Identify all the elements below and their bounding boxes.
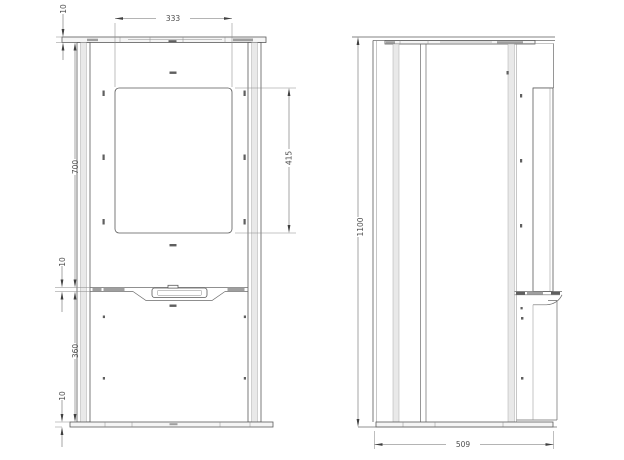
side-rail-front bbox=[508, 44, 515, 422]
front-view bbox=[62, 37, 273, 427]
dim-opening-width-label: 333 bbox=[166, 14, 181, 23]
dim-overall-height-label: 1100 bbox=[356, 217, 365, 236]
side-top-block-step bbox=[533, 44, 554, 89]
side-rail-back bbox=[393, 44, 399, 422]
handle-latch-button bbox=[168, 285, 178, 288]
front-base-center-mark bbox=[170, 423, 178, 425]
side-handle-bracket bbox=[515, 292, 563, 305]
front-top-plate-fitting-right bbox=[233, 39, 253, 42]
dim-overall-depth-label: 509 bbox=[456, 440, 471, 449]
dim-lower-height-label: 360 bbox=[71, 344, 80, 359]
handle-grip bbox=[152, 288, 207, 298]
cabinet-dimension-drawing: 10 700 10 360 10 333 415 bbox=[0, 0, 624, 460]
side-dimensions: 1100 509 bbox=[356, 37, 554, 449]
front-top-plate-fitting-left bbox=[87, 39, 98, 41]
side-inner-wall bbox=[421, 44, 427, 422]
side-view bbox=[352, 37, 562, 427]
front-left-rail-band bbox=[81, 43, 87, 423]
front-top-plate-center-mark bbox=[169, 40, 177, 42]
technical-drawing-page: 10 700 10 360 10 333 415 bbox=[0, 0, 624, 460]
dim-top-thickness-label: 10 bbox=[59, 4, 68, 14]
side-base-plate bbox=[376, 422, 553, 427]
front-divider bbox=[90, 285, 248, 300]
dim-opening-height-label: 415 bbox=[285, 151, 294, 166]
front-right-rail-band bbox=[252, 43, 258, 423]
dim-divider-gap-label: 10 bbox=[58, 257, 67, 267]
dim-base-thickness-label: 10 bbox=[58, 391, 67, 401]
front-door-panel bbox=[115, 88, 232, 233]
dim-upper-height-label: 700 bbox=[71, 160, 80, 175]
